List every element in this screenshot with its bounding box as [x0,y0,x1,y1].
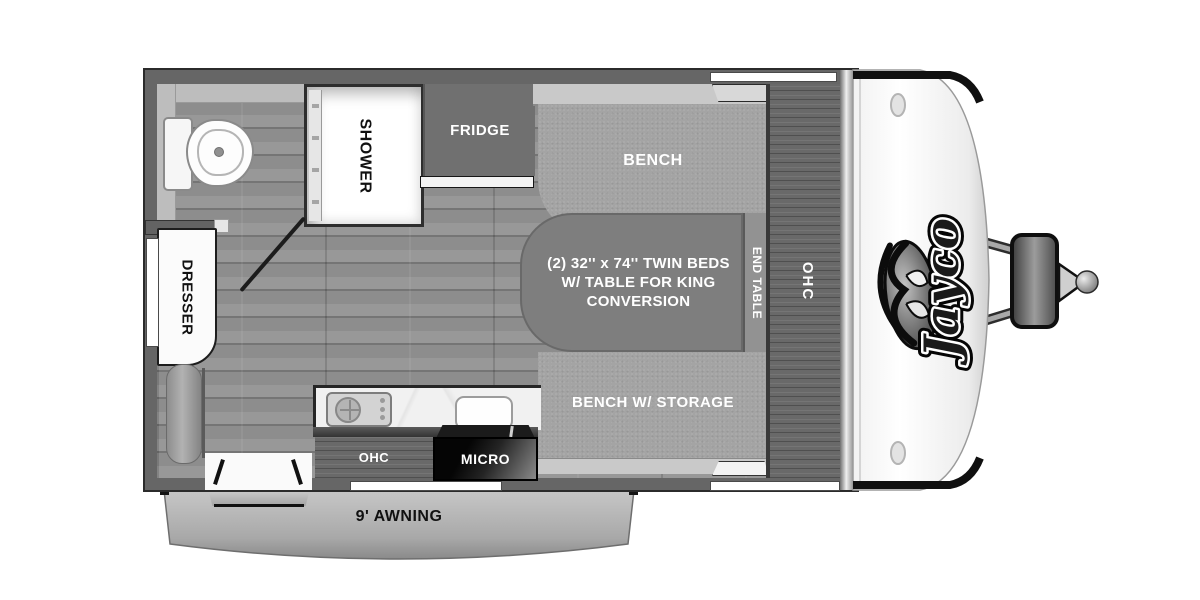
door-frame-mark [291,459,303,485]
dresser-label-wrap: DRESSER [159,230,215,364]
fridge-base-trim [420,176,534,188]
wardrobe-cabinet [166,364,202,464]
bench-with-storage: BENCH W/ STORAGE [538,352,768,458]
burner-grate [340,409,360,411]
overhead-cabinet: OHC [770,84,845,478]
stove-burner-icon [335,397,361,423]
microwave: MICRO [433,437,538,481]
stove-knobs [380,398,386,420]
hitch-ball-icon [1076,271,1098,293]
window-front-curb [710,72,837,82]
bench-label: BENCH [538,152,768,170]
twin-beds-line3: CONVERSION [587,292,691,311]
window-bench [710,481,840,491]
kitchen-ohc-label: OHC [359,450,389,465]
stove-knob-icon [380,407,385,412]
toilet-flush-button [214,147,224,157]
twin-beds-line2: W/ TABLE FOR KING [562,273,716,292]
entry-door-opening [205,453,312,490]
shower-label: SHOWER [355,118,373,193]
kitchen-overhead-cabinet: OHC [315,437,433,478]
dresser-label: DRESSER [179,259,196,335]
shower-stall: SHOWER [304,84,424,227]
shower-label-wrap: SHOWER [307,87,421,224]
window-rear [146,238,159,347]
cap-latch-icon [891,442,905,464]
stove-knob-icon [380,398,385,403]
dresser: DRESSER [157,228,217,366]
bathroom-counter-top [157,84,305,103]
fridge: FRIDGE [423,84,535,176]
stove-knob-icon [380,415,385,420]
jayco-logo-text: Jayco [915,218,970,366]
door-frame-mark [213,459,225,485]
bench-storage-trim [712,461,769,476]
cap-latch-icon [891,94,905,116]
twin-beds-line1: (2) 32'' x 74'' TWIN BEDS [547,254,730,273]
ohc-label: OHC [799,261,816,300]
awning-label: 9' AWNING [158,508,640,526]
bench-storage-label: BENCH W/ STORAGE [538,394,768,411]
entry-step-edge [214,504,304,507]
twin-bed-table: (2) 32'' x 74'' TWIN BEDS W/ TABLE FOR K… [520,213,743,352]
propane-tank-icon [1012,235,1057,327]
sink-icon [455,396,513,430]
end-table-label: END TABLE [751,246,765,318]
microwave-label: MICRO [461,451,510,467]
jayco-logo: Jayco Jayco Jayco [915,218,970,366]
window-kitchen [350,481,502,491]
wardrobe-edge [202,368,205,458]
front-cap-and-hitch: Jayco Jayco Jayco [845,55,1110,510]
floorplan-scene: 9' AWNING SHOWER DRESSER FRIDGE [0,0,1200,600]
stove-icon [326,392,392,427]
ohc-label-wrap: OHC [770,84,845,478]
fridge-label: FRIDGE [450,122,510,139]
